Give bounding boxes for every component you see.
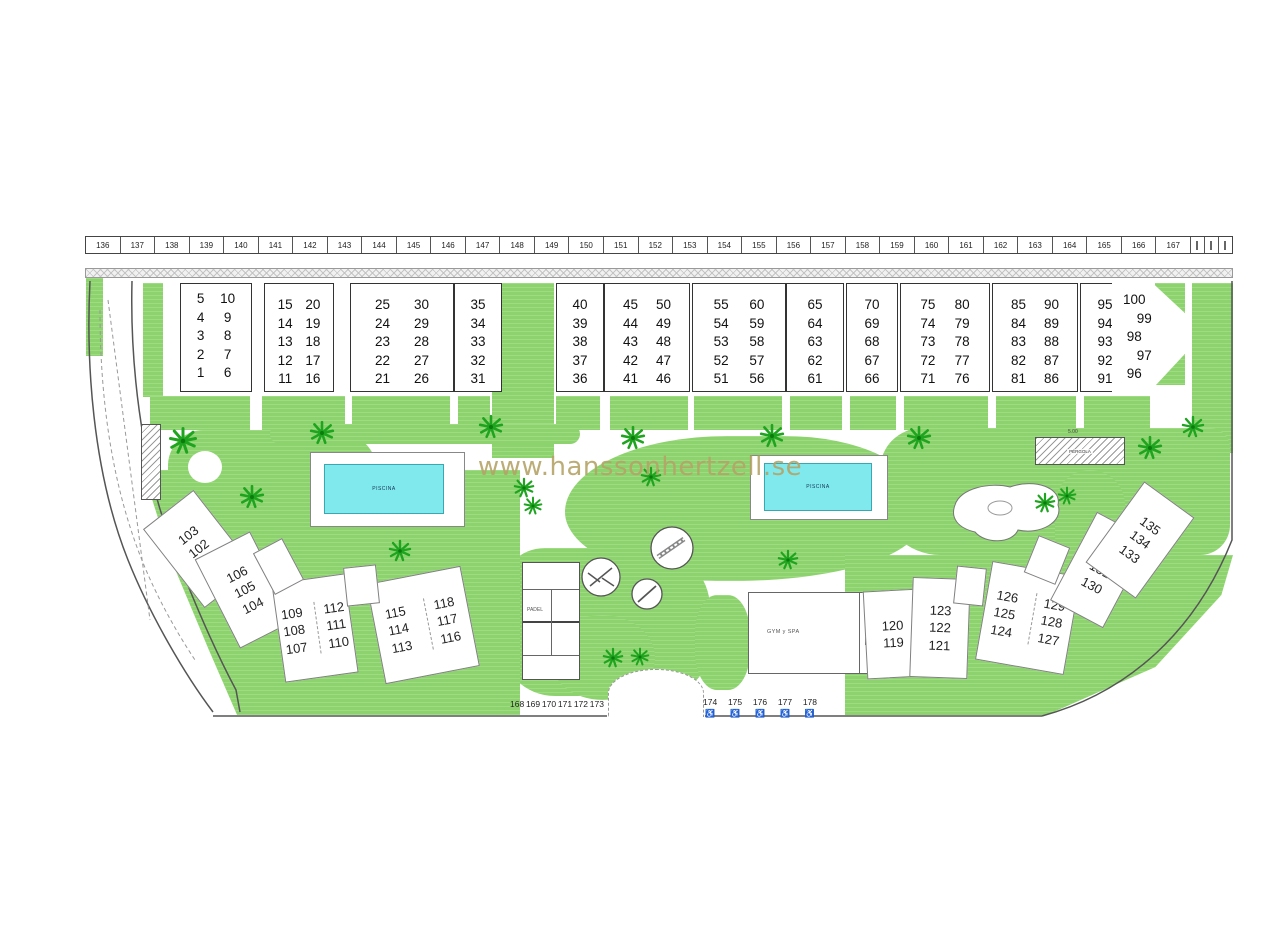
unit-number: 19 <box>305 315 320 334</box>
unit-number: 16 <box>305 370 320 389</box>
parking-space: 147 <box>466 237 501 253</box>
wheelchair-icon: ♿ <box>705 709 715 718</box>
stair-core <box>343 564 380 606</box>
unit-number: 44 <box>623 315 638 334</box>
wheelchair-icon: ♿ <box>805 709 815 718</box>
unit-number: 77 <box>955 352 970 371</box>
unit-number: 98 <box>1123 328 1146 347</box>
parking-space: 166 <box>1122 237 1157 253</box>
padel-court-label: PADEL <box>527 607 543 613</box>
unit-number: 76 <box>955 370 970 389</box>
unit-number: 86 <box>1044 370 1059 389</box>
unit-number: 42 <box>623 352 638 371</box>
unit-number: 78 <box>955 333 970 352</box>
parking-space: 164 <box>1053 237 1088 253</box>
unit-number: 75 <box>920 296 935 315</box>
unit-number: 45 <box>623 296 638 315</box>
parking-row-accessible: 174 ♿ 175 ♿ 176 ♿ 177 ♿ 178 ♿ <box>703 698 817 718</box>
unit-number: 55 <box>714 296 729 315</box>
unit-number: 6 <box>220 364 235 383</box>
wheelchair-icon: ♿ <box>780 709 790 718</box>
building-block-41-50: 4544434241 5049484746 <box>604 283 690 392</box>
parking-space: 136 <box>86 237 121 253</box>
unit-number: 34 <box>470 315 485 334</box>
unit-number: 69 <box>864 315 879 334</box>
accessible-space: 175 ♿ <box>728 698 742 718</box>
unit-number: 65 <box>807 296 822 315</box>
unit-number: 79 <box>955 315 970 334</box>
pool-right-label: PISCINA <box>806 484 830 490</box>
unit-number: 49 <box>656 315 671 334</box>
parking-space: 165 <box>1087 237 1122 253</box>
unit-number: 28 <box>414 333 429 352</box>
building-block-21-30: 2524232221 3029282726 <box>350 283 454 392</box>
parking-space: 153 <box>673 237 708 253</box>
building-block-36-40: 4039383736 <box>556 283 604 392</box>
site-plan: 1361371381391401411421431441451461471481… <box>0 0 1280 933</box>
unit-number: 13 <box>278 333 293 352</box>
parking-space: 174 <box>703 698 717 707</box>
stair-core <box>953 566 987 607</box>
unit-number: 8 <box>220 327 235 346</box>
building-block-81-90: 8584838281 9089888786 <box>992 283 1078 392</box>
parking-space: 162 <box>984 237 1019 253</box>
unit-number: 46 <box>656 370 671 389</box>
unit-number: 48 <box>656 333 671 352</box>
unit-number: 90 <box>1044 296 1059 315</box>
unit-number: 58 <box>749 333 764 352</box>
building-113-118: 115114113 118117116 <box>366 566 480 684</box>
parking-spaces: 1361371381391401411421431441451461471481… <box>86 237 1191 253</box>
building-block-11-20: 1514131211 2019181716 <box>264 283 334 392</box>
parking-space: 172 <box>574 699 588 709</box>
unit-number: 89 <box>1044 315 1059 334</box>
unit-number: 41 <box>623 370 638 389</box>
unit-number: 20 <box>305 296 320 315</box>
unit-number: 7 <box>220 346 235 365</box>
unit-number: 60 <box>749 296 764 315</box>
unit-number: 116 <box>439 627 463 648</box>
unit-number: 97 <box>1133 347 1156 366</box>
parking-space: 161 <box>949 237 984 253</box>
parking-space: 145 <box>397 237 432 253</box>
parking-space: 139 <box>190 237 225 253</box>
watermark: www.hanssonhertzell.se <box>0 452 1280 482</box>
unit-number: 40 <box>572 296 587 315</box>
pergola-dimension: 5.00 <box>1068 429 1078 435</box>
parking-row: 1361371381391401411421431441451461471481… <box>85 236 1233 254</box>
parking-space: 170 <box>542 699 556 709</box>
padel-court: PADEL <box>522 562 580 680</box>
unit-number: 10 <box>220 290 235 309</box>
accessible-space: 176 ♿ <box>753 698 767 718</box>
parking-space: 137 <box>121 237 156 253</box>
playground <box>582 527 693 609</box>
unit-number: 27 <box>414 352 429 371</box>
unit-number: 2 <box>197 346 205 365</box>
accessible-space: 178 ♿ <box>803 698 817 718</box>
parking-space: 152 <box>639 237 674 253</box>
unit-number: 24 <box>375 315 390 334</box>
unit-number: 61 <box>807 370 822 389</box>
unit-number: 120 <box>881 616 904 635</box>
unit-number: 18 <box>305 333 320 352</box>
parking-space-narrow <box>1191 237 1205 253</box>
unit-number: 39 <box>572 315 587 334</box>
unit-number: 25 <box>375 296 390 315</box>
walkway-hatch <box>85 268 1233 278</box>
unit-number: 66 <box>864 370 879 389</box>
unit-number: 22 <box>375 352 390 371</box>
unit-number: 52 <box>714 352 729 371</box>
unit-number: 38 <box>572 333 587 352</box>
unit-number: 26 <box>414 370 429 389</box>
unit-number: 47 <box>656 352 671 371</box>
building-block-61-65: 6564636261 <box>786 283 844 392</box>
unit-number: 81 <box>1011 370 1026 389</box>
unit-number: 5 <box>197 290 205 309</box>
unit-number: 96 <box>1123 365 1146 384</box>
unit-number: 33 <box>470 333 485 352</box>
parking-space: 156 <box>777 237 812 253</box>
building-block-71-80: 7574737271 8079787776 <box>900 283 990 392</box>
unit-number: 57 <box>749 352 764 371</box>
parking-space: 149 <box>535 237 570 253</box>
parking-space: 163 <box>1018 237 1053 253</box>
unit-number: 59 <box>749 315 764 334</box>
parking-space: 150 <box>569 237 604 253</box>
unit-number: 62 <box>807 352 822 371</box>
parking-space: 173 <box>590 699 604 709</box>
parking-space: 154 <box>708 237 743 253</box>
parking-space: 159 <box>880 237 915 253</box>
parking-space: 177 <box>778 698 792 707</box>
unit-number: 70 <box>864 296 879 315</box>
unit-number: 67 <box>864 352 879 371</box>
parking-space: 160 <box>915 237 950 253</box>
parking-space: 140 <box>224 237 259 253</box>
parking-space: 138 <box>155 237 190 253</box>
parking-space-narrow <box>1219 237 1232 253</box>
unit-number: 3 <box>197 327 205 346</box>
parking-space: 168 <box>510 699 524 709</box>
gym-spa-label: GYM y SPA <box>767 629 800 635</box>
building-block-51-60: 5554535251 6059585756 <box>692 283 786 392</box>
unit-number: 123 <box>929 601 951 619</box>
parking-space: 167 <box>1156 237 1191 253</box>
accessible-space: 174 ♿ <box>703 698 717 718</box>
unit-number: 68 <box>864 333 879 352</box>
parking-space: 169 <box>526 699 540 709</box>
accessible-space: 177 ♿ <box>778 698 792 718</box>
parking-space: 144 <box>362 237 397 253</box>
unit-number: 93 <box>1097 333 1112 352</box>
unit-number: 53 <box>714 333 729 352</box>
wheelchair-icon: ♿ <box>730 709 740 718</box>
parking-space: 176 <box>753 698 767 707</box>
parking-space: 142 <box>293 237 328 253</box>
parking-space: 158 <box>846 237 881 253</box>
unit-number: 122 <box>929 619 951 637</box>
unit-number: 80 <box>955 296 970 315</box>
unit-number: 50 <box>656 296 671 315</box>
parking-space-narrow <box>1205 237 1219 253</box>
unit-number: 30 <box>414 296 429 315</box>
unit-number: 32 <box>470 352 485 371</box>
wheelchair-icon: ♿ <box>755 709 765 718</box>
building-block-31-35: 3534333231 <box>454 283 502 392</box>
unit-number: 29 <box>414 315 429 334</box>
unit-number: 127 <box>1036 629 1060 650</box>
unit-number: 110 <box>327 632 350 652</box>
entrance-arc <box>608 669 704 717</box>
unit-number: 124 <box>989 621 1013 642</box>
unit-number: 21 <box>375 370 390 389</box>
unit-number: 4 <box>197 309 205 328</box>
parking-space: 146 <box>431 237 466 253</box>
parking-space: 157 <box>811 237 846 253</box>
unit-number: 11 <box>278 370 293 389</box>
unit-number: 84 <box>1011 315 1026 334</box>
unit-number: 9 <box>220 309 235 328</box>
unit-number: 113 <box>390 636 414 657</box>
unit-number: 12 <box>278 352 293 371</box>
unit-number: 35 <box>470 296 485 315</box>
unit-number: 73 <box>920 333 935 352</box>
unit-number: 63 <box>807 333 822 352</box>
unit-number: 71 <box>920 370 935 389</box>
parking-space: 151 <box>604 237 639 253</box>
unit-number: 36 <box>572 370 587 389</box>
building-block-1-10: 54321 109876 <box>180 283 252 392</box>
unit-number: 56 <box>749 370 764 389</box>
unit-number: 72 <box>920 352 935 371</box>
unit-number: 99 <box>1133 310 1156 329</box>
gym-spa-building: GYM y SPA <box>748 592 882 674</box>
unit-number: 64 <box>807 315 822 334</box>
parking-space: 141 <box>259 237 294 253</box>
unit-number: 74 <box>920 315 935 334</box>
unit-number: 1 <box>197 364 205 383</box>
unit-number: 17 <box>305 352 320 371</box>
unit-number: 51 <box>714 370 729 389</box>
unit-number: 119 <box>882 633 905 652</box>
parking-space: 143 <box>328 237 363 253</box>
unit-number: 92 <box>1097 352 1112 371</box>
parking-space: 155 <box>742 237 777 253</box>
unit-number: 83 <box>1011 333 1026 352</box>
parking-space: 175 <box>728 698 742 707</box>
parking-space: 171 <box>558 699 572 709</box>
unit-number: 37 <box>572 352 587 371</box>
unit-number: 87 <box>1044 352 1059 371</box>
pool-left-label: PISCINA <box>372 486 396 492</box>
parking-row-168-173: 168169170171172173 <box>510 699 604 709</box>
unit-number: 82 <box>1011 352 1026 371</box>
unit-number: 85 <box>1011 296 1026 315</box>
unit-number: 121 <box>928 636 950 654</box>
unit-number: 107 <box>285 638 309 658</box>
unit-number: 94 <box>1097 315 1112 334</box>
unit-number: 23 <box>375 333 390 352</box>
unit-number: 31 <box>470 370 485 389</box>
pond <box>954 484 1059 541</box>
unit-number: 91 <box>1097 370 1112 389</box>
unit-number: 54 <box>714 315 729 334</box>
unit-number: 100 <box>1123 291 1146 310</box>
parking-space: 178 <box>803 698 817 707</box>
unit-number: 14 <box>278 315 293 334</box>
unit-number: 88 <box>1044 333 1059 352</box>
unit-number: 95 <box>1097 296 1112 315</box>
building-block-66-70: 7069686766 <box>846 283 898 392</box>
unit-number: 43 <box>623 333 638 352</box>
parking-space: 148 <box>500 237 535 253</box>
unit-number: 15 <box>278 296 293 315</box>
